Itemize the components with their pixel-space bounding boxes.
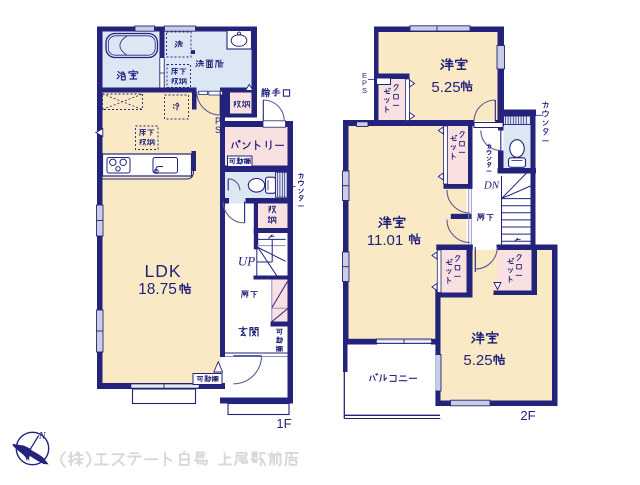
svg-text:1F: 1F: [276, 416, 291, 431]
svg-text:LDK: LDK: [144, 261, 181, 281]
svg-text:S: S: [362, 86, 367, 95]
svg-text:18.75: 18.75: [138, 281, 177, 298]
svg-text:11.01: 11.01: [367, 232, 403, 249]
svg-text:S: S: [215, 125, 221, 135]
svg-text:UP: UP: [238, 254, 255, 269]
svg-text:5.25: 5.25: [431, 79, 460, 96]
svg-text:N: N: [38, 431, 47, 442]
svg-text:DN: DN: [483, 180, 500, 192]
svg-text:5.25: 5.25: [463, 352, 492, 369]
svg-text:2F: 2F: [520, 408, 535, 423]
